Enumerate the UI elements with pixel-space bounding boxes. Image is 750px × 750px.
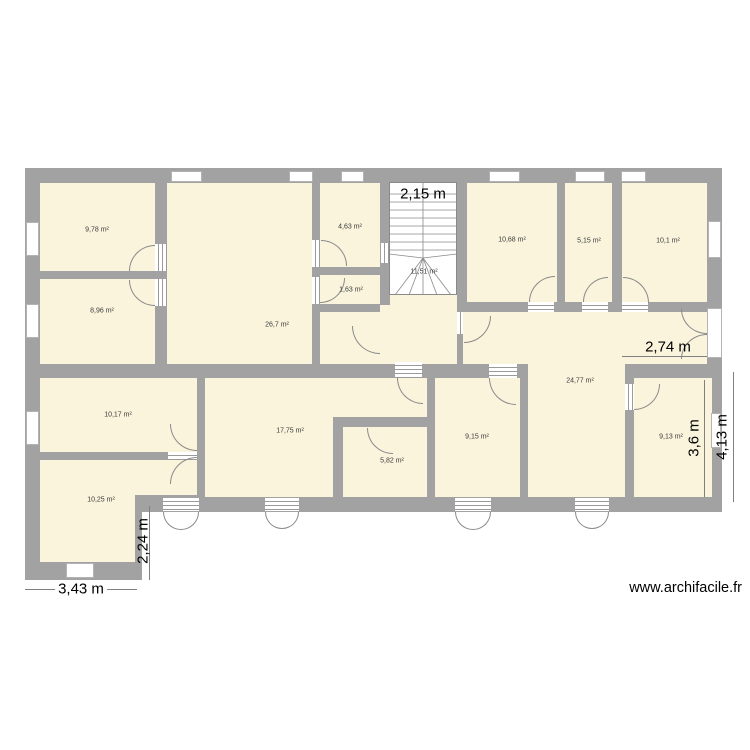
room-area-label: 8,96 m² — [90, 308, 114, 315]
french-door-opening[interactable] — [707, 308, 722, 358]
room-area-label: 4,63 m² — [338, 224, 362, 231]
room-area-label: 26,7 m² — [265, 322, 289, 329]
door-symbol[interactable] — [381, 243, 389, 263]
exterior-door-arc[interactable] — [163, 512, 181, 530]
exterior-door-arc[interactable] — [575, 512, 592, 529]
exterior-door-arc[interactable] — [455, 512, 473, 530]
exterior-door-arc[interactable] — [265, 512, 282, 529]
room-area-label: 10,17 m² — [104, 412, 132, 419]
room-area-label: 5,82 m² — [380, 458, 404, 465]
exterior-door-arc[interactable] — [181, 512, 199, 530]
dimension-label-room-height: 3,6 m — [686, 419, 703, 457]
window[interactable] — [26, 411, 39, 445]
room-area-label: 5,15 m² — [577, 238, 601, 245]
door-symbol[interactable] — [528, 302, 554, 312]
dimension-label-stair-width: 2,15 m — [400, 186, 446, 203]
double-door-symbol[interactable] — [455, 498, 491, 511]
door-symbol[interactable] — [582, 302, 608, 312]
door-symbol[interactable] — [312, 277, 320, 304]
dimension-line — [704, 380, 705, 497]
double-door-symbol[interactable] — [265, 498, 299, 511]
room-area-label: 10,1 m² — [656, 238, 680, 245]
door-symbol[interactable] — [489, 364, 517, 378]
dimension-label-hall-width: 2,74 m — [645, 339, 691, 356]
room-area-label: 24,77 m² — [566, 378, 594, 385]
room-bottom-left-lower[interactable] — [40, 460, 135, 562]
room-living[interactable] — [167, 183, 312, 364]
room-area-label: 9,78 m² — [85, 227, 109, 234]
window[interactable] — [708, 221, 721, 258]
exterior-door-arc[interactable] — [592, 512, 609, 529]
window[interactable] — [621, 171, 646, 182]
room-area-label: 17,75 m² — [276, 428, 304, 435]
door-symbol[interactable] — [155, 279, 167, 306]
dimension-label-right-height: 4,13 m — [714, 414, 731, 460]
exterior-door-arc[interactable] — [282, 512, 299, 529]
door-symbol[interactable] — [625, 384, 634, 410]
room-area-label: 10,68 m² — [498, 237, 526, 244]
door-symbol[interactable] — [622, 302, 648, 312]
room-bottom-mid[interactable] — [205, 378, 427, 497]
window[interactable] — [26, 304, 39, 338]
window[interactable] — [171, 171, 202, 182]
room-area-label: 9,13 m² — [659, 434, 683, 441]
dimension-line — [622, 356, 707, 357]
window[interactable] — [66, 563, 94, 578]
dimension-label-ext-height: 2,24 m — [135, 518, 152, 564]
floor-plan-canvas: 9,78 m² 8,96 m² 26,7 m² 4,63 m² 1,63 m² … — [0, 0, 750, 750]
room-area-label: 10,25 m² — [87, 497, 115, 504]
double-door-symbol[interactable] — [575, 498, 609, 511]
window[interactable] — [341, 171, 364, 182]
hall-strip[interactable] — [528, 312, 625, 497]
window[interactable] — [489, 171, 520, 182]
glazed-door-symbol[interactable] — [395, 362, 422, 378]
watermark: www.archifacile.fr — [629, 580, 742, 596]
wall-segment — [333, 427, 343, 497]
door-symbol[interactable] — [312, 240, 320, 267]
dimension-label-ext-width: 3,43 m — [55, 581, 107, 598]
door-symbol[interactable] — [155, 244, 167, 271]
window[interactable] — [289, 171, 313, 182]
room-area-label: 1,63 m² — [339, 287, 363, 294]
room-area-label: 9,15 m² — [465, 434, 489, 441]
room-area-label: 11,51 m² — [410, 269, 437, 276]
window[interactable] — [575, 171, 605, 182]
door-symbol[interactable] — [457, 312, 463, 334]
wall-segment — [333, 417, 433, 427]
double-door-symbol[interactable] — [163, 498, 199, 511]
window[interactable] — [26, 222, 39, 256]
dimension-line — [733, 372, 734, 502]
exterior-door-arc[interactable] — [473, 512, 491, 530]
